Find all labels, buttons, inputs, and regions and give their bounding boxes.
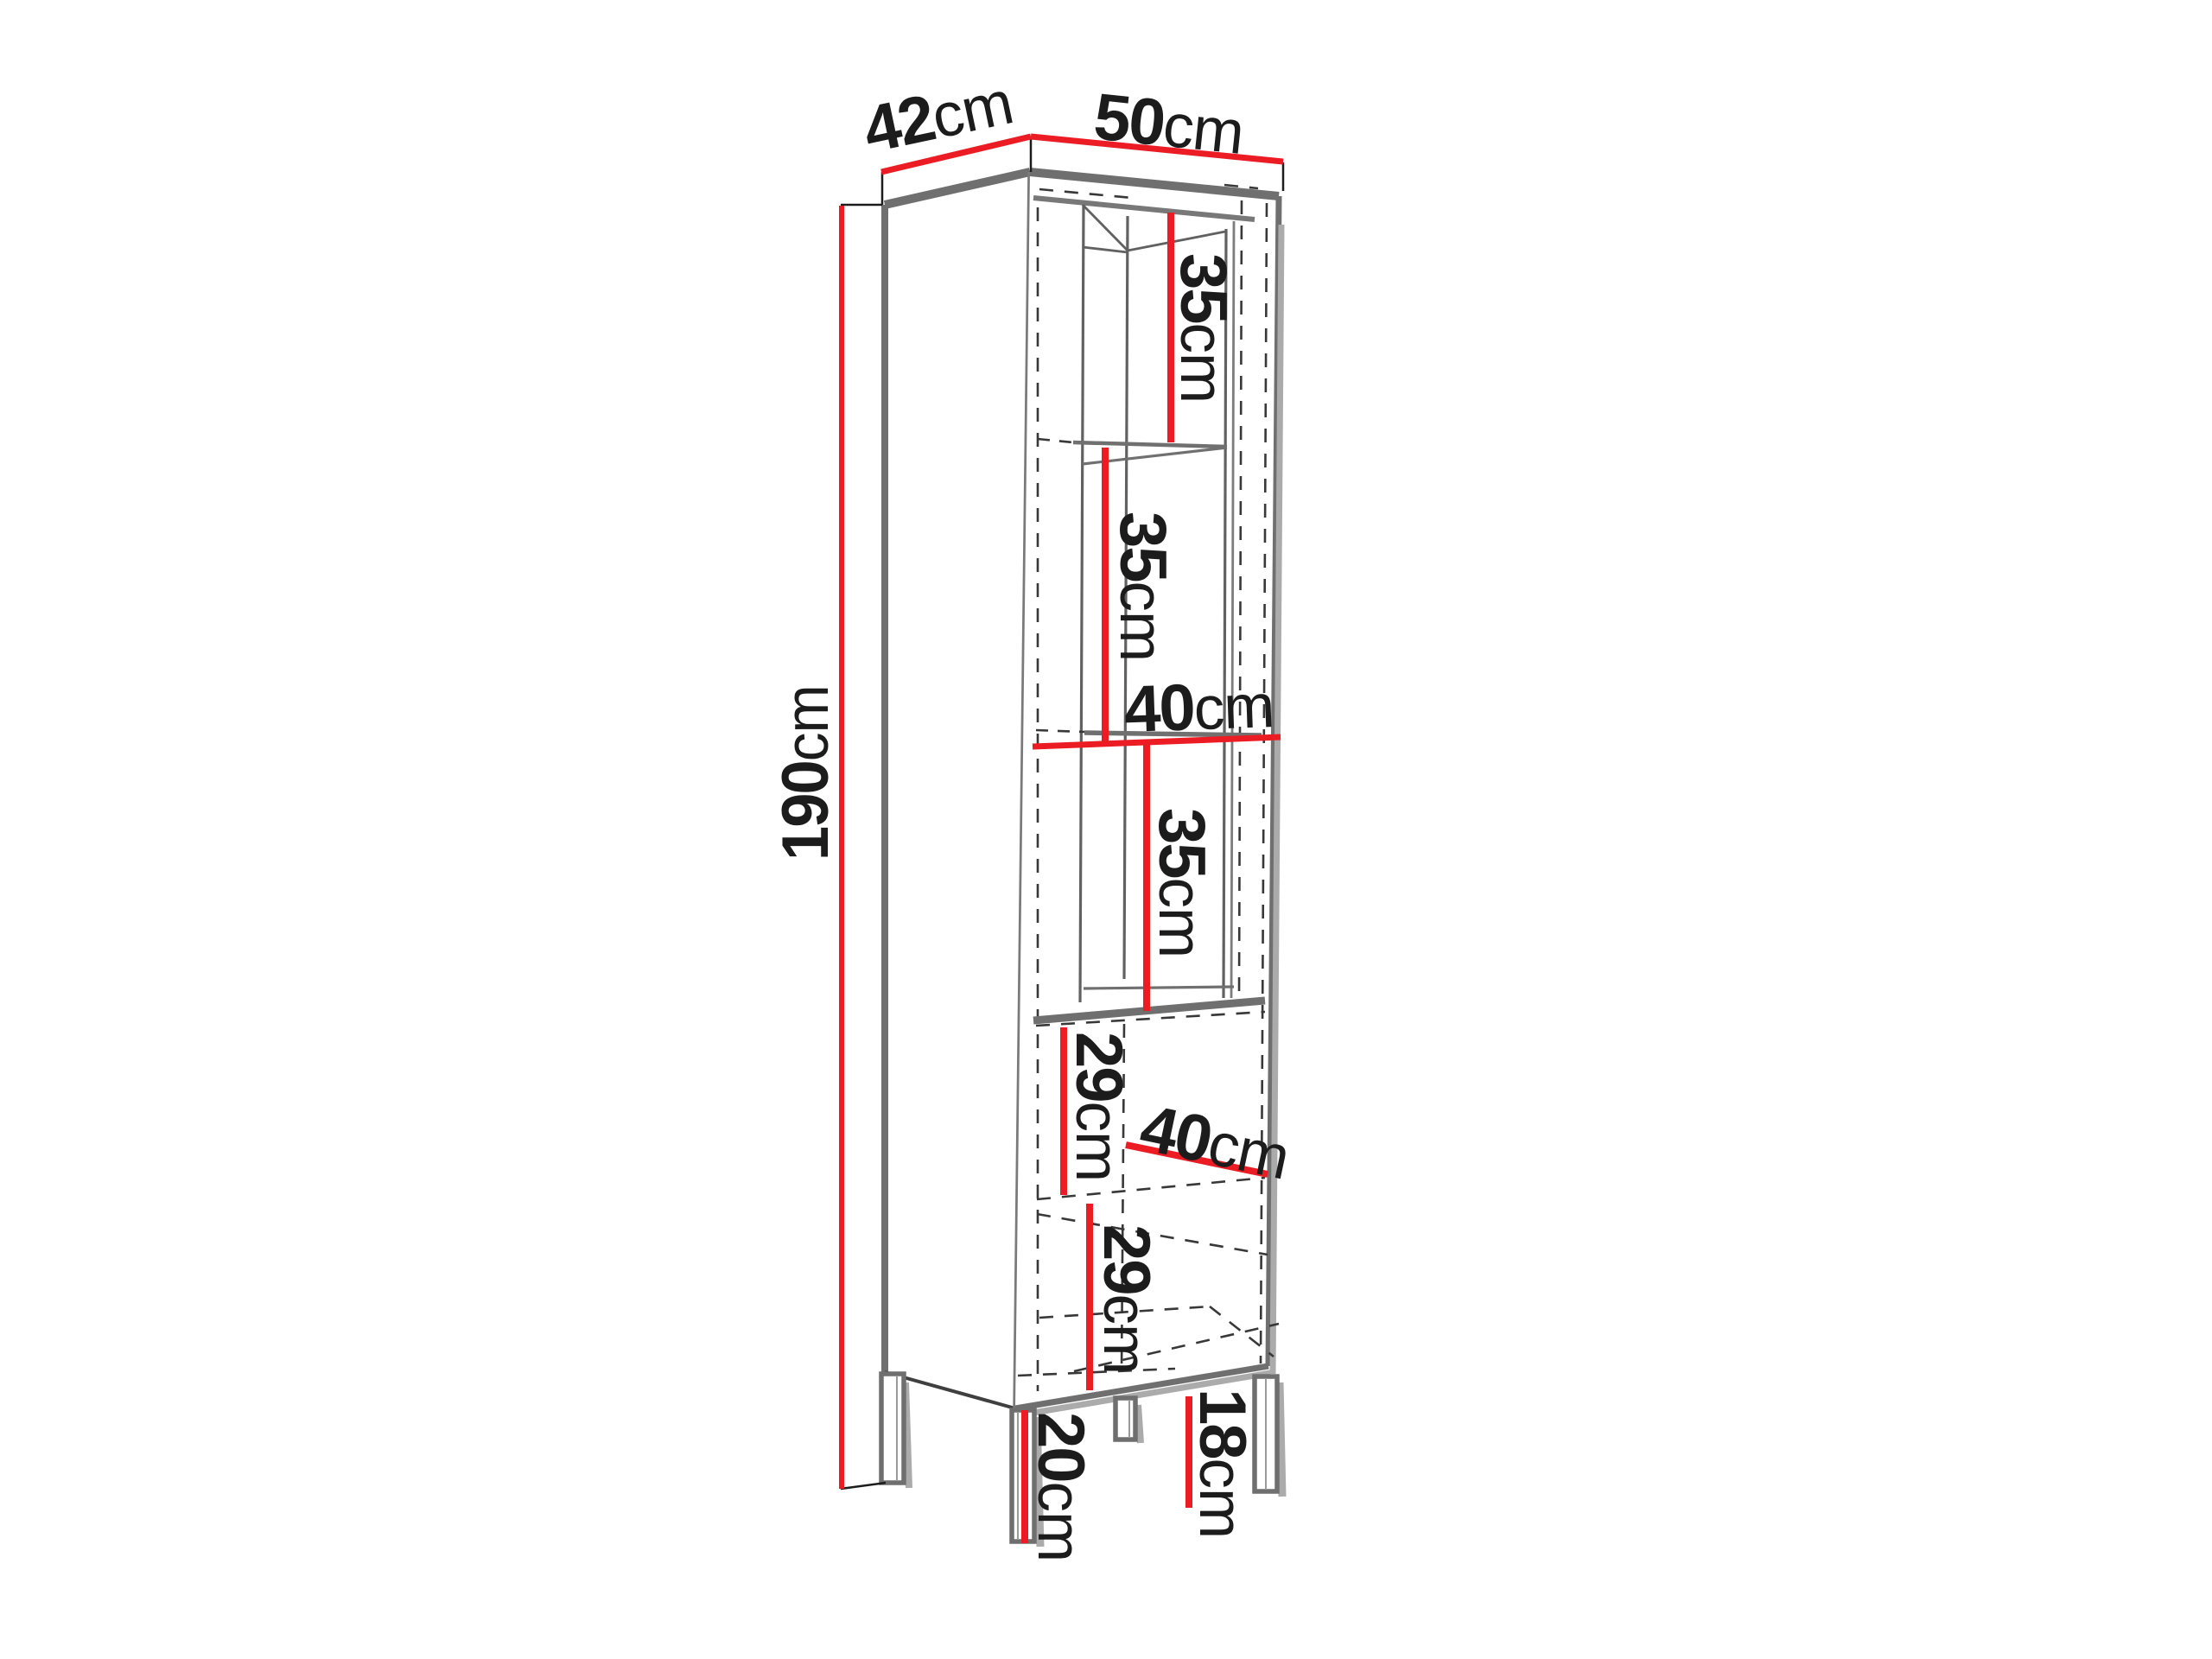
svg-text:35cm: 35cm xyxy=(1166,253,1240,403)
svg-text:29cm: 29cm xyxy=(1062,1032,1135,1181)
svg-text:29cm: 29cm xyxy=(1090,1224,1163,1374)
svg-text:18cm: 18cm xyxy=(1185,1389,1259,1538)
svg-text:35cm: 35cm xyxy=(1145,808,1218,957)
svg-text:190cm: 190cm xyxy=(768,685,842,861)
svg-text:35cm: 35cm xyxy=(1106,512,1179,661)
svg-text:20cm: 20cm xyxy=(1024,1412,1097,1561)
svg-text:40cm: 40cm xyxy=(1123,668,1275,747)
